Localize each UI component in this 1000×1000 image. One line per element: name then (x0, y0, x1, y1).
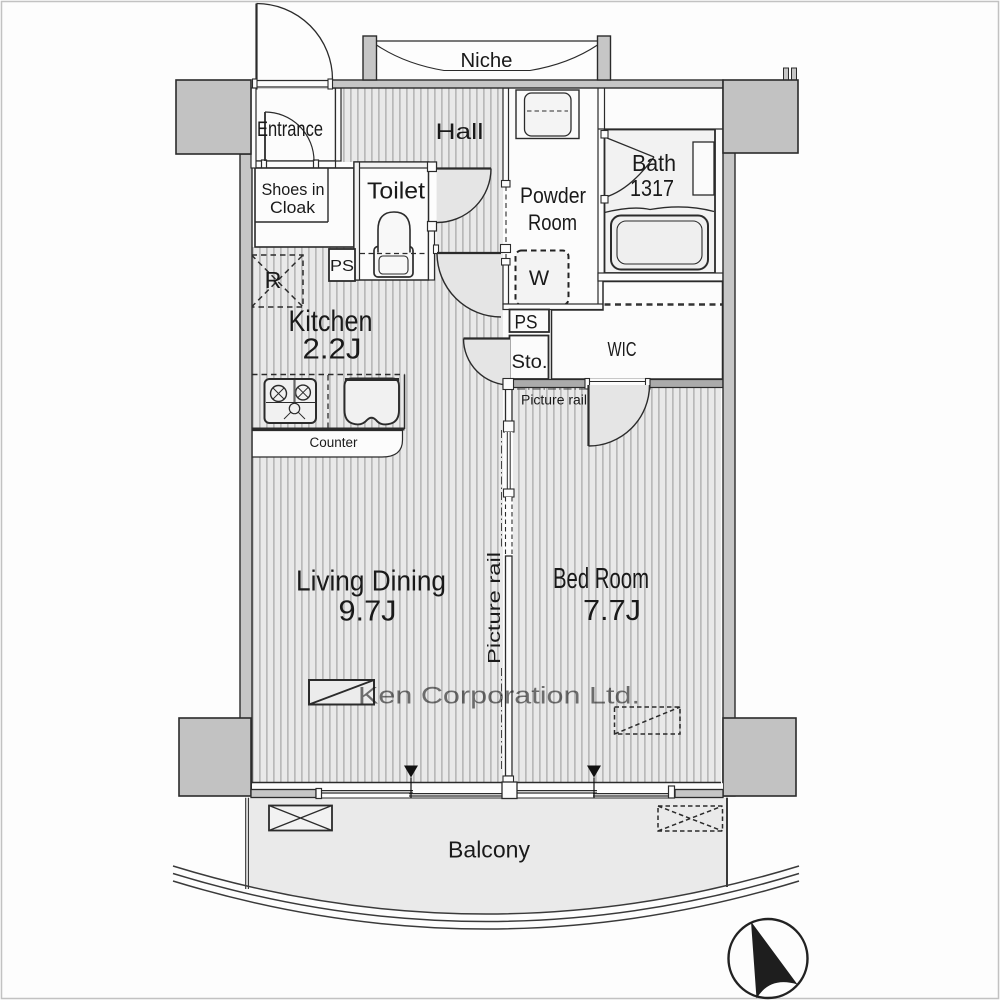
svg-text:PS: PS (330, 258, 354, 275)
svg-text:Bath: Bath (632, 150, 676, 176)
svg-text:2.2J: 2.2J (303, 334, 362, 366)
svg-text:R: R (265, 267, 282, 293)
svg-text:Counter: Counter (310, 435, 359, 450)
svg-text:7.7J: 7.7J (583, 595, 641, 627)
svg-text:WIC: WIC (608, 339, 637, 361)
svg-text:PS: PS (515, 313, 538, 334)
svg-text:1317: 1317 (630, 175, 674, 201)
svg-text:Room: Room (528, 210, 577, 235)
svg-text:Toilet: Toilet (367, 178, 426, 204)
svg-text:Cloak: Cloak (270, 198, 316, 217)
svg-text:Bed Room: Bed Room (553, 563, 649, 595)
svg-text:Shoes in: Shoes in (262, 180, 325, 199)
svg-text:Picture rail: Picture rail (484, 552, 504, 664)
svg-text:9.7J: 9.7J (339, 596, 397, 628)
svg-text:W: W (529, 266, 550, 290)
svg-text:Powder: Powder (520, 183, 586, 208)
svg-text:Picture rail: Picture rail (521, 393, 587, 408)
svg-text:Hall: Hall (436, 119, 484, 144)
svg-text:Living Dining: Living Dining (296, 566, 446, 598)
svg-text:Entrance: Entrance (257, 118, 323, 141)
svg-text:Balcony: Balcony (448, 837, 530, 863)
svg-text:Niche: Niche (461, 50, 513, 72)
svg-text:Sto.: Sto. (512, 352, 548, 373)
svg-text:Ken Corporation Ltd.: Ken Corporation Ltd. (358, 683, 640, 710)
